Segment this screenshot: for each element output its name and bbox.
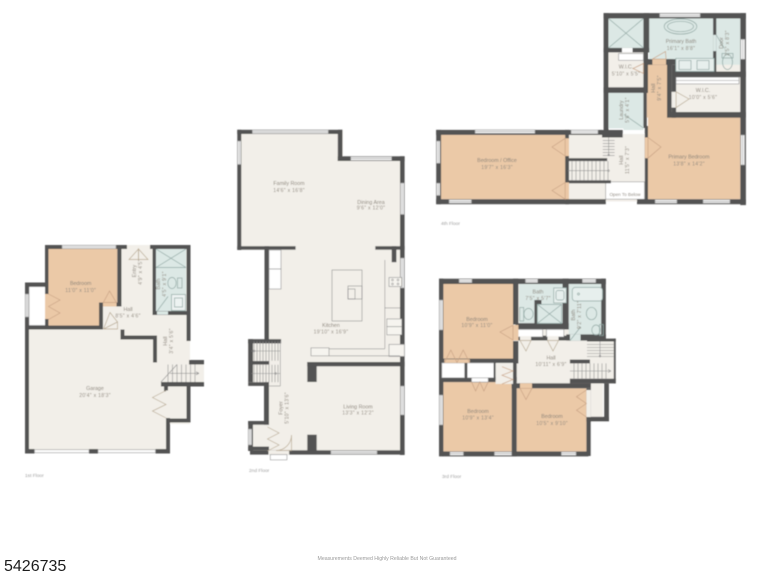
- svg-text:19'7" x 16'3": 19'7" x 16'3": [481, 165, 513, 171]
- svg-text:10'0" x 5'6": 10'0" x 5'6": [689, 95, 717, 101]
- svg-text:Bedroom: Bedroom: [541, 414, 563, 420]
- svg-text:9'2" x 7'11": 9'2" x 7'11": [577, 301, 583, 329]
- svg-text:4'5" x 9'1": 4'5" x 9'1": [162, 271, 168, 296]
- svg-text:W.I.C.: W.I.C.: [696, 88, 710, 94]
- svg-text:13'3" x 12'2": 13'3" x 12'2": [342, 411, 374, 417]
- svg-text:Kitchen: Kitchen: [322, 323, 340, 329]
- svg-text:Bedroom: Bedroom: [70, 281, 92, 287]
- svg-text:16'1" x 8'8": 16'1" x 8'8": [667, 46, 695, 52]
- svg-text:14'6" x 16'8": 14'6" x 16'8": [273, 188, 305, 194]
- svg-text:9'4" x 7'5": 9'4" x 7'5": [657, 75, 663, 100]
- svg-text:Primary Bath: Primary Bath: [666, 39, 697, 45]
- svg-text:8'5" x 4'6": 8'5" x 4'6": [115, 314, 140, 320]
- svg-text:2nd Floor: 2nd Floor: [249, 468, 270, 474]
- svg-text:Open To Below: Open To Below: [609, 192, 641, 197]
- svg-text:3'4" x 5'6": 3'4" x 5'6": [169, 328, 175, 353]
- svg-text:Primary Bedroom: Primary Bedroom: [668, 155, 710, 161]
- svg-text:4th Floor: 4th Floor: [441, 221, 460, 227]
- svg-text:4'9" x 4'5": 4'9" x 4'5": [138, 259, 144, 284]
- svg-text:10'11" x 6'9": 10'11" x 6'9": [535, 362, 566, 368]
- svg-text:13'8" x 14'2": 13'8" x 14'2": [673, 161, 705, 167]
- svg-text:1st Floor: 1st Floor: [25, 473, 44, 479]
- svg-text:2'5" x 8'3": 2'5" x 8'3": [725, 30, 731, 55]
- svg-text:Family Room: Family Room: [273, 181, 305, 187]
- svg-text:3rd Floor: 3rd Floor: [442, 474, 462, 480]
- svg-text:9'6" x 12'0": 9'6" x 12'0": [357, 206, 385, 212]
- svg-text:Garage: Garage: [86, 386, 104, 392]
- svg-text:Bedroom: Bedroom: [466, 317, 488, 323]
- svg-text:10'9" x 13'4": 10'9" x 13'4": [462, 416, 494, 422]
- svg-text:11'5" x 7'3": 11'5" x 7'3": [625, 146, 631, 174]
- svg-text:Hall: Hall: [123, 307, 132, 313]
- svg-text:5'10" x 13'6": 5'10" x 13'6": [285, 392, 291, 424]
- svg-text:7'5" x 5'7": 7'5" x 5'7": [525, 296, 550, 302]
- svg-text:Bedroom: Bedroom: [467, 409, 489, 415]
- svg-text:10'9" x 11'0": 10'9" x 11'0": [461, 323, 492, 329]
- svg-text:19'10" x 16'9": 19'10" x 16'9": [314, 330, 349, 336]
- svg-text:20'4" x 18'3": 20'4" x 18'3": [79, 393, 111, 399]
- svg-text:Bedroom / Office: Bedroom / Office: [477, 158, 517, 164]
- svg-text:Bath: Bath: [533, 290, 544, 296]
- svg-text:10'5" x 9'10": 10'5" x 9'10": [536, 421, 568, 427]
- svg-text:W.I.C.: W.I.C.: [619, 65, 633, 71]
- svg-text:Hall: Hall: [546, 356, 555, 362]
- svg-text:5'10" x 5'5": 5'10" x 5'5": [612, 72, 640, 78]
- svg-text:11'0" x 11'0": 11'0" x 11'0": [65, 288, 96, 294]
- svg-text:5'6" x 4'1": 5'6" x 4'1": [625, 97, 631, 122]
